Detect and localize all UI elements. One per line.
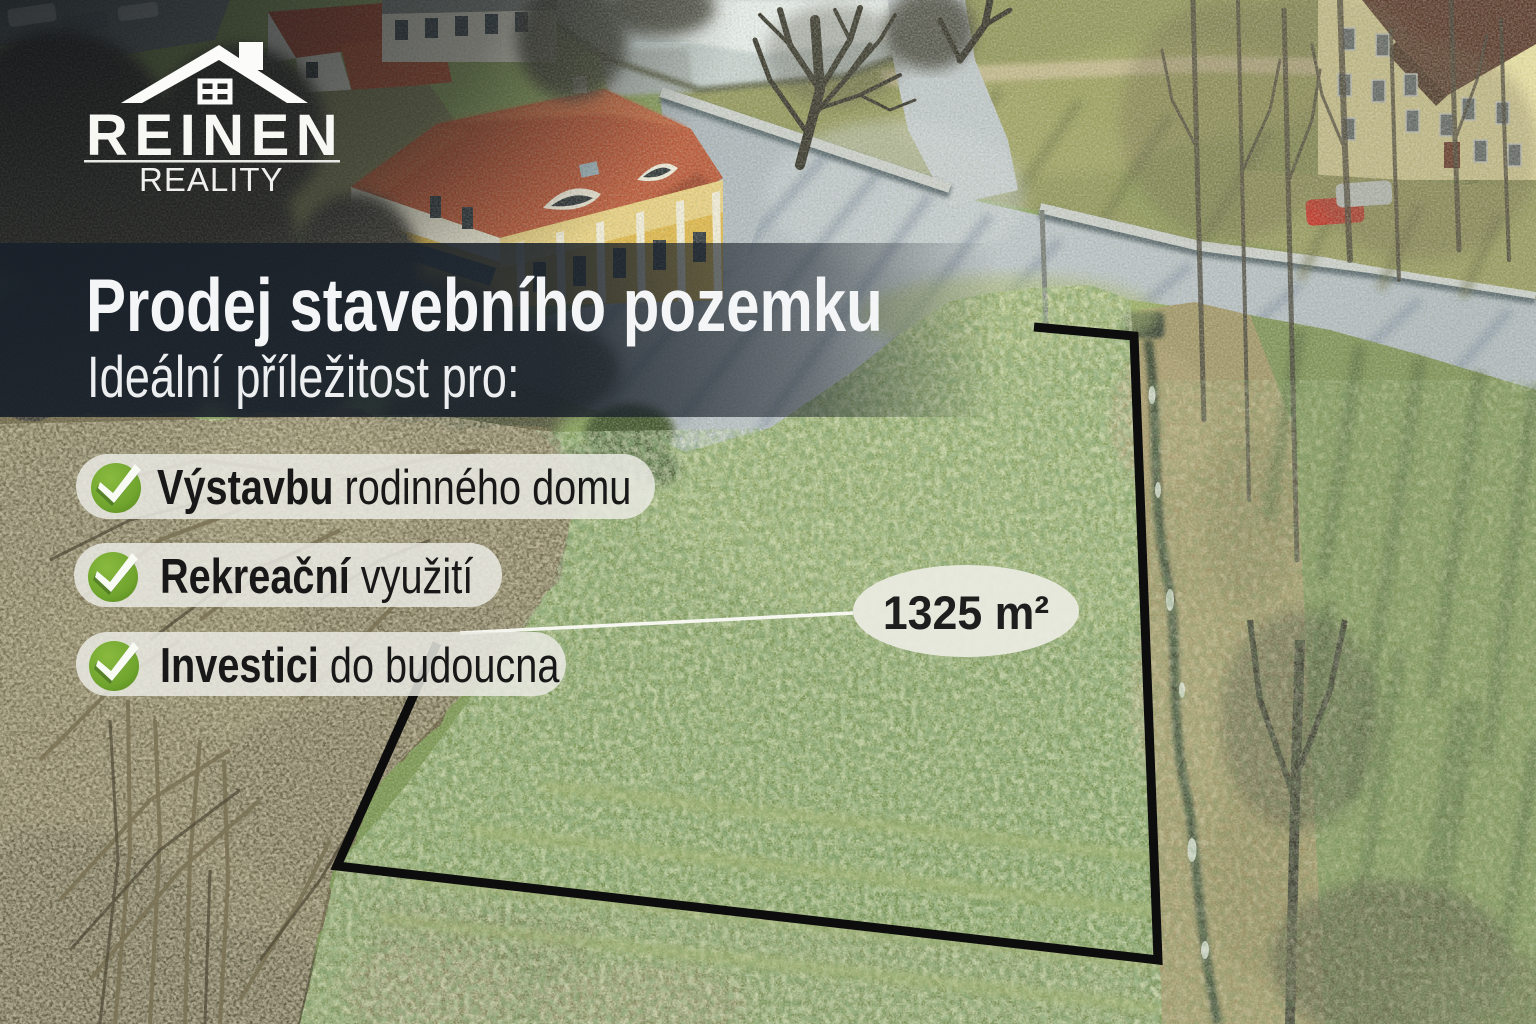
svg-text:REINEN: REINEN: [86, 103, 344, 168]
svg-text:REALITY: REALITY: [139, 161, 284, 198]
